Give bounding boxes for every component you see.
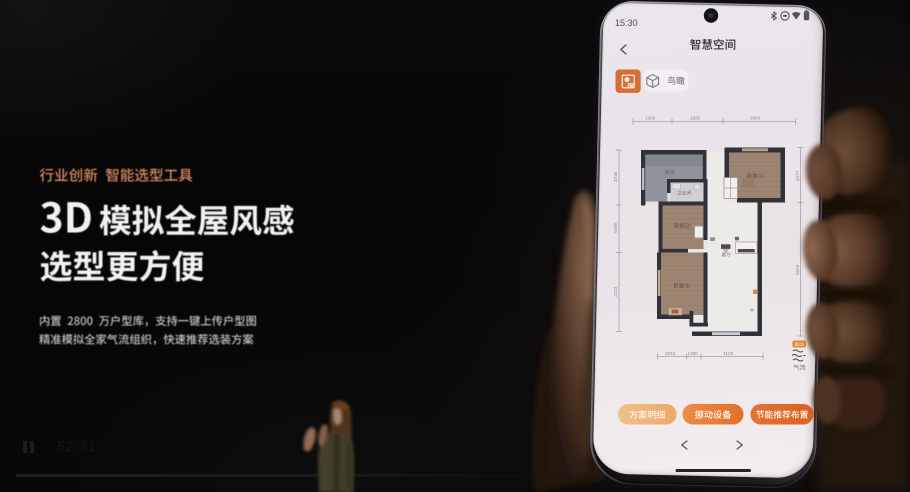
svg-text:1965: 1965 [645,116,656,121]
svg-text:1920: 1920 [690,116,701,121]
svg-text:3736: 3736 [613,171,618,182]
svg-text:2223: 2223 [613,286,618,297]
svg-text:5490: 5490 [613,222,618,233]
svg-text:2213: 2213 [665,351,676,356]
svg-text:15:30: 15:30 [615,18,638,28]
svg-text:1300: 1300 [688,351,699,356]
svg-text:4123: 4123 [723,351,734,356]
